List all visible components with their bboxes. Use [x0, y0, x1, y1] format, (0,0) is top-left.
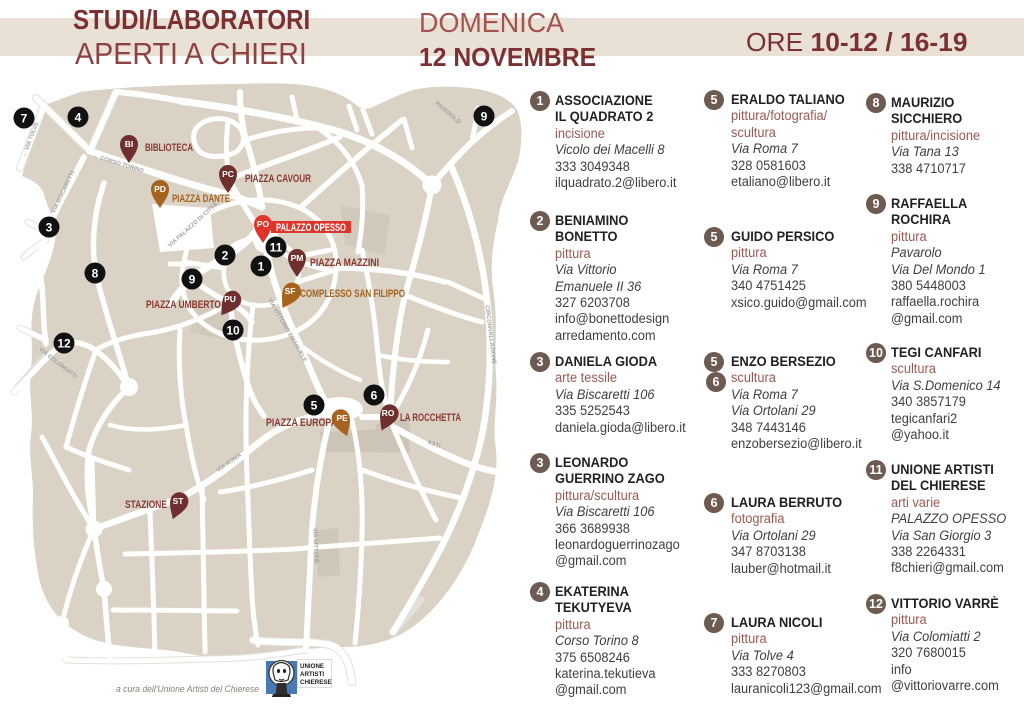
svg-text:PALAZZO OPESSO: PALAZZO OPESSO	[276, 222, 346, 234]
svg-text:PIAZZA MAZZINI: PIAZZA MAZZINI	[310, 257, 379, 269]
svg-text:9: 9	[189, 273, 196, 287]
svg-text:LA ROCCHETTA: LA ROCCHETTA	[400, 412, 461, 424]
svg-text:10: 10	[226, 324, 240, 338]
svg-text:11: 11	[270, 241, 283, 255]
svg-text:PO: PO	[257, 219, 270, 229]
svg-text:PD: PD	[154, 184, 166, 194]
svg-text:PIAZZA EUROPA: PIAZZA EUROPA	[266, 417, 337, 429]
svg-text:1: 1	[258, 260, 265, 274]
svg-text:PIAZZA DANTE: PIAZZA DANTE	[172, 193, 230, 205]
svg-text:BI: BI	[125, 139, 134, 149]
svg-text:PM: PM	[291, 253, 304, 263]
svg-text:PIAZZA UMBERTO: PIAZZA UMBERTO	[146, 299, 221, 311]
svg-text:ARTISTI: ARTISTI	[300, 671, 324, 678]
svg-text:BIBLIOTECA: BIBLIOTECA	[145, 142, 193, 154]
svg-text:PE: PE	[336, 413, 348, 423]
svg-text:7: 7	[21, 112, 28, 126]
svg-text:PIAZZA CAVOUR: PIAZZA CAVOUR	[245, 173, 311, 185]
svg-text:SF: SF	[285, 286, 296, 296]
svg-text:5: 5	[311, 399, 318, 413]
svg-text:2: 2	[222, 249, 229, 263]
svg-text:PC: PC	[222, 169, 234, 179]
svg-text:12: 12	[57, 337, 71, 351]
svg-text:6: 6	[371, 389, 378, 403]
svg-text:RO: RO	[382, 408, 395, 418]
svg-text:3: 3	[46, 221, 53, 235]
svg-text:PU: PU	[224, 294, 236, 304]
svg-text:STAZIONE: STAZIONE	[125, 499, 167, 511]
svg-text:ST: ST	[173, 496, 185, 506]
svg-text:4: 4	[75, 111, 82, 125]
svg-text:UNIONE: UNIONE	[300, 663, 324, 670]
svg-text:CHIERESE: CHIERESE	[300, 679, 332, 686]
svg-text:8: 8	[92, 267, 99, 281]
svg-text:9: 9	[481, 110, 488, 124]
svg-text:a cura dell'Unione Artisti del: a cura dell'Unione Artisti del Chierese	[116, 684, 259, 694]
svg-text:COMPLESSO SAN FILIPPO: COMPLESSO SAN FILIPPO	[300, 288, 405, 300]
